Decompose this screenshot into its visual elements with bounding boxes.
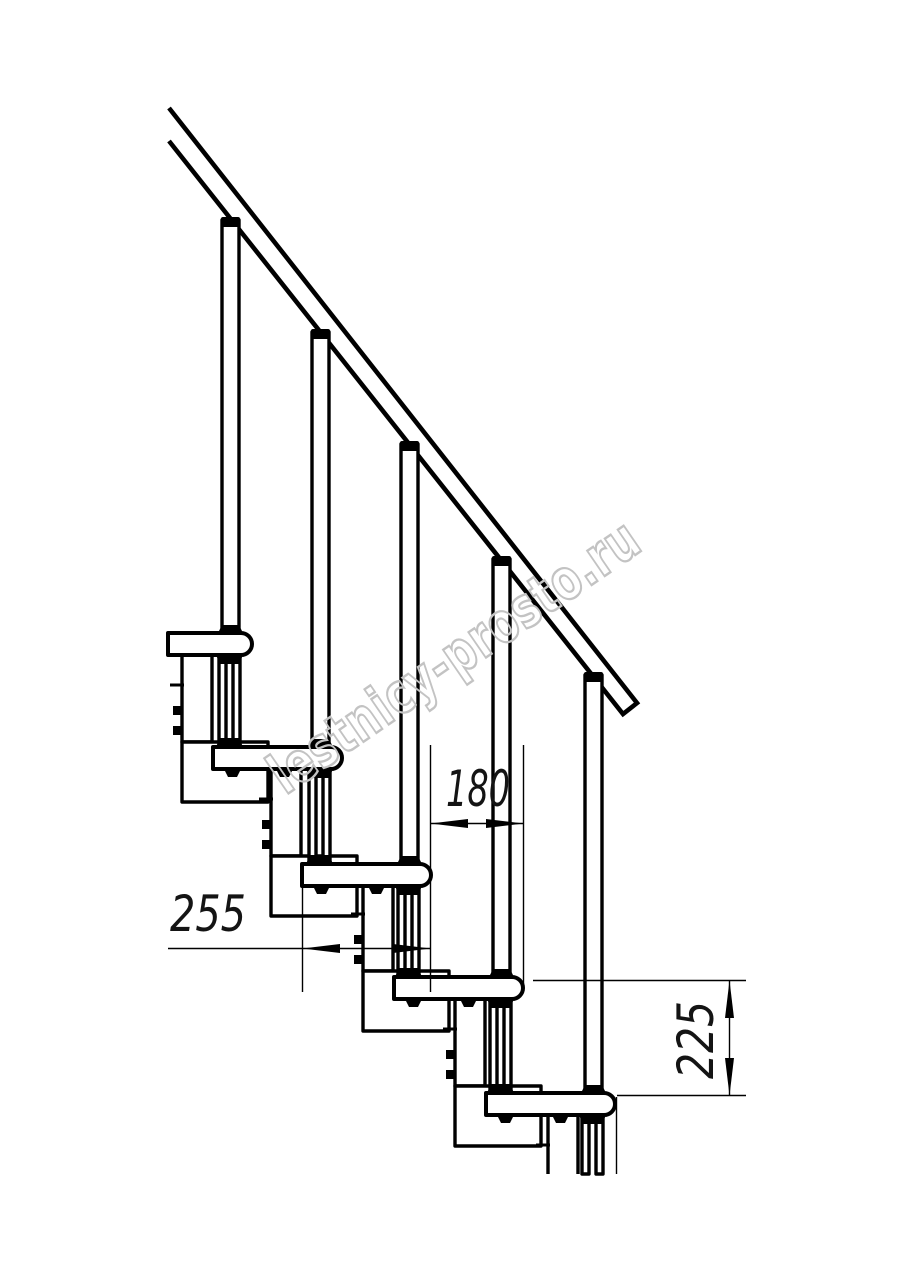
front-posts-1: [216, 655, 243, 747]
tread-4: [394, 977, 523, 999]
baluster-5: [584, 672, 603, 1093]
module-bolt: [446, 1050, 456, 1059]
baluster-top-cap: [400, 441, 419, 451]
baluster-collar: [581, 1085, 606, 1093]
staircase-technical-drawing: 180 255 225 lestnicy-prosto.ru: [0, 0, 914, 1280]
module-bolt: [262, 840, 272, 849]
post: [412, 886, 419, 977]
baluster-top-cap: [584, 672, 603, 682]
arrow-left-icon: [431, 819, 469, 828]
post: [490, 999, 497, 1093]
arrow-up-icon: [725, 981, 734, 1019]
baluster-top-cap: [221, 217, 240, 227]
module-slab: [363, 882, 393, 971]
baluster-tube: [585, 675, 602, 1093]
baluster-2: [311, 329, 330, 747]
module-bolt: [262, 820, 272, 829]
module-bolt: [173, 726, 183, 735]
baluster-tube: [222, 220, 239, 633]
dimension-label-255: 255: [170, 885, 246, 943]
module-bolt: [354, 935, 364, 944]
tread-3: [302, 864, 431, 886]
post: [219, 655, 226, 747]
baluster-collar: [218, 625, 243, 633]
module-slab: [455, 997, 485, 1086]
front-posts-3: [395, 886, 422, 977]
baluster-tube: [312, 332, 329, 747]
tread-1: [168, 633, 252, 655]
arrow-left-icon: [303, 944, 341, 953]
module-slab: [182, 653, 212, 742]
baluster-top-cap: [311, 329, 330, 339]
post: [233, 655, 240, 747]
post: [504, 999, 511, 1093]
dimension-label-180: 180: [446, 760, 510, 818]
dimension-label-225: 225: [667, 1001, 725, 1079]
tread-5: [486, 1093, 615, 1115]
arrow-down-icon: [725, 1058, 734, 1096]
technical-drawing-page: 180 255 225 lestnicy-prosto.ru: [0, 0, 914, 1280]
module-bolt: [446, 1070, 456, 1079]
module-bolt: [173, 706, 183, 715]
baluster-top-cap: [492, 556, 511, 566]
front-posts-4: [487, 999, 514, 1093]
front-posts-5: [579, 1115, 606, 1174]
baluster-1: [221, 217, 240, 633]
baluster-collar: [489, 969, 514, 977]
post: [398, 886, 405, 977]
module-bolt: [354, 955, 364, 964]
baluster-collar: [397, 856, 422, 864]
